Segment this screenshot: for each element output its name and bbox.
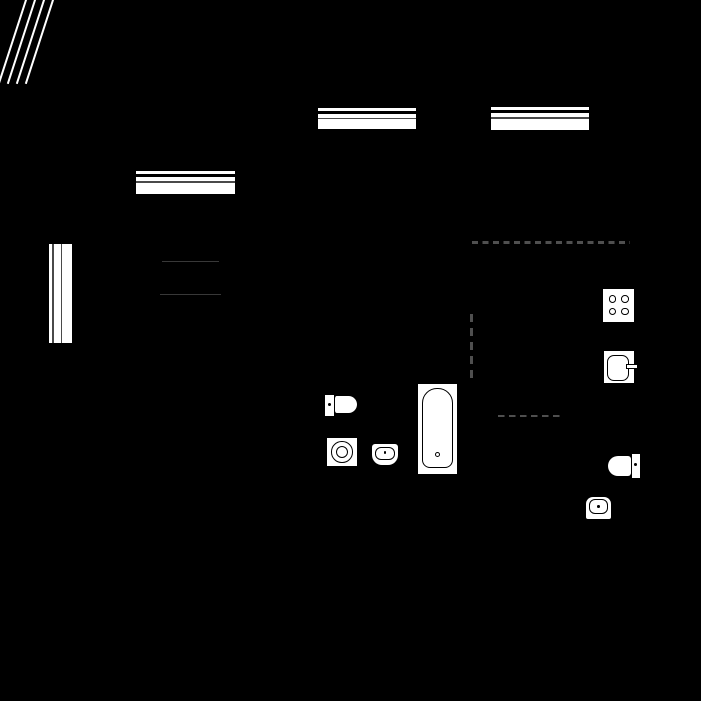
burner-icon bbox=[609, 308, 617, 316]
window-pane-gap bbox=[318, 111, 416, 114]
floor-plan bbox=[0, 0, 701, 701]
window-icon bbox=[491, 107, 589, 130]
toilet-icon bbox=[608, 456, 631, 476]
toilet-button bbox=[328, 403, 331, 406]
window-pane-gap bbox=[61, 244, 63, 343]
kitchen-sink-icon bbox=[604, 351, 634, 383]
table-line bbox=[160, 294, 221, 296]
window-icon bbox=[318, 108, 416, 130]
dashed-divider-line bbox=[470, 314, 472, 380]
window-pane-gap bbox=[491, 110, 589, 113]
faucet-icon bbox=[626, 364, 638, 369]
hatch-line bbox=[0, 0, 28, 84]
corner-hatch-icon bbox=[4, 0, 50, 86]
window-icon bbox=[136, 171, 235, 194]
toilet-icon bbox=[334, 396, 357, 413]
wc-basin-icon bbox=[586, 497, 611, 520]
window-pane-gap bbox=[52, 244, 54, 343]
table-line bbox=[162, 261, 219, 262]
window-pane-gap bbox=[136, 174, 235, 177]
burner-icon bbox=[621, 308, 629, 316]
window-pane-gap bbox=[491, 117, 589, 119]
burner-icon bbox=[621, 295, 629, 303]
dashed-divider-line bbox=[498, 415, 564, 417]
window-pane-gap bbox=[136, 181, 235, 183]
stove-icon bbox=[603, 289, 634, 322]
bathtub-icon bbox=[418, 384, 457, 474]
window-pane-gap bbox=[318, 118, 416, 120]
window-icon bbox=[49, 244, 72, 343]
washing-machine-icon bbox=[327, 438, 357, 466]
burner-icon bbox=[609, 295, 617, 303]
dashed-divider-line bbox=[472, 241, 630, 243]
bathroom-basin-icon bbox=[372, 444, 399, 465]
